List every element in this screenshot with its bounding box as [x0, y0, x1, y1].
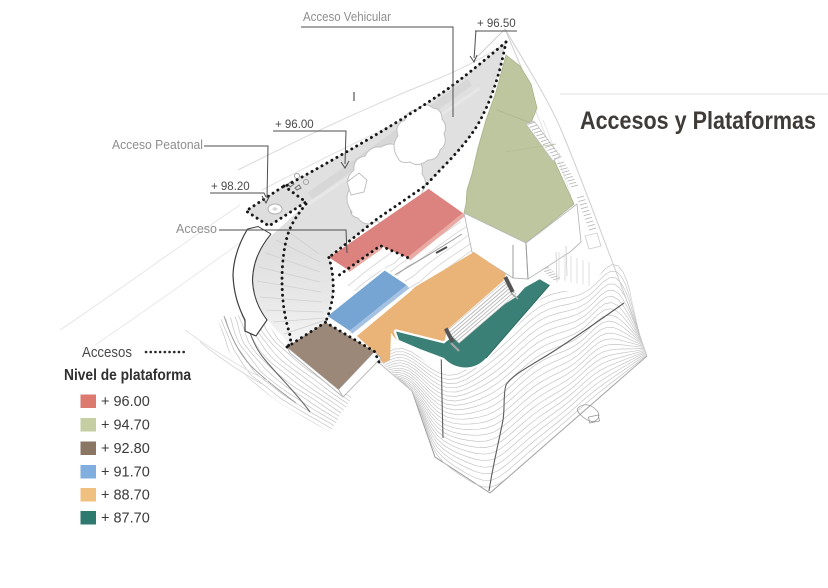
svg-text:+ 96.00: + 96.00	[275, 119, 314, 131]
svg-text:Accesos y Plataformas: Accesos y Plataformas	[580, 107, 816, 135]
svg-text:+ 88.70: + 88.70	[101, 488, 150, 504]
svg-text:+ 87.70: + 87.70	[101, 511, 150, 527]
svg-text:+ 94.70: + 94.70	[101, 418, 150, 434]
svg-text:+ 92.80: + 92.80	[101, 441, 150, 457]
svg-text:+ 96.00: + 96.00	[101, 394, 150, 410]
svg-text:+ 91.70: + 91.70	[101, 465, 150, 481]
svg-text:Acceso Vehicular: Acceso Vehicular	[303, 10, 391, 24]
svg-text:Acceso: Acceso	[176, 222, 217, 236]
svg-text:+ 98.20: + 98.20	[211, 181, 250, 193]
svg-text:+ 96.50: + 96.50	[477, 18, 516, 30]
svg-text:Accesos: Accesos	[82, 344, 132, 361]
svg-text:Acceso Peatonal: Acceso Peatonal	[112, 138, 203, 152]
svg-text:Nivel de plataforma: Nivel de plataforma	[64, 367, 191, 384]
